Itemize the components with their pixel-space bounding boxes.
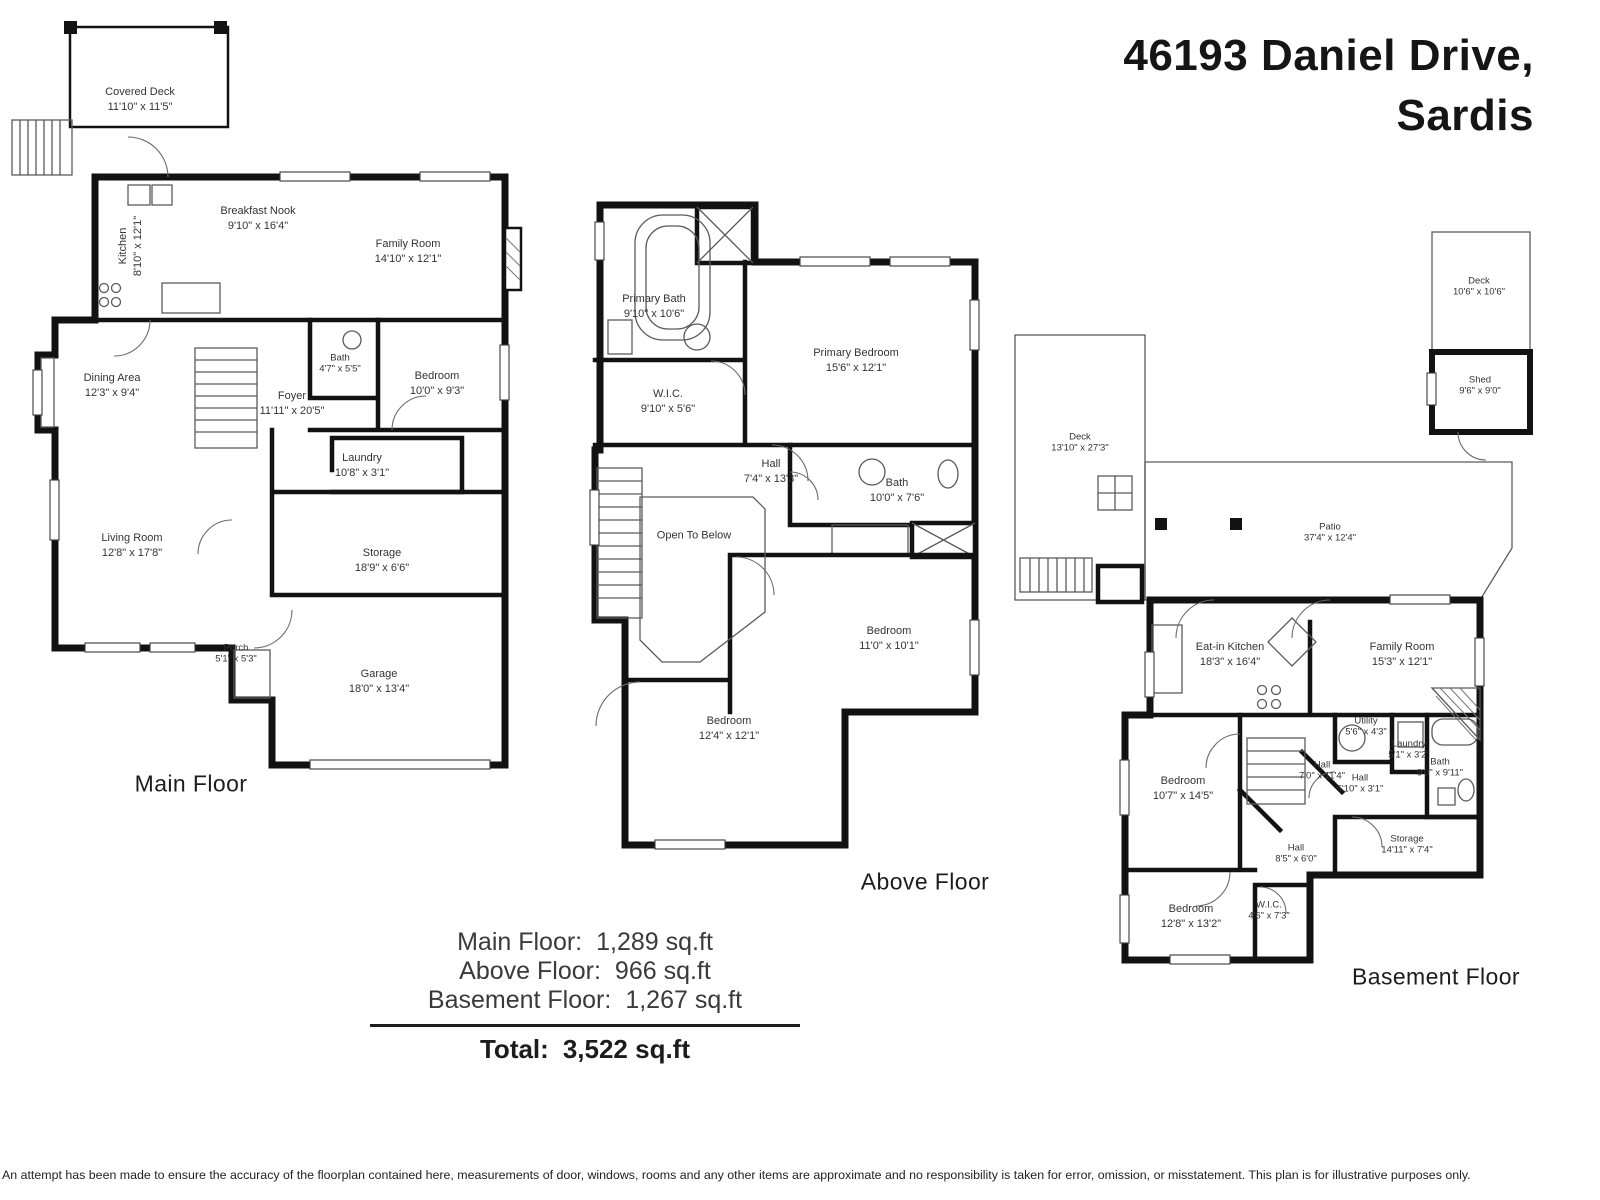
room-label-open-to-below: Open To Below (657, 529, 731, 544)
summary-label: Main Floor: (457, 928, 582, 957)
room-label-breakfast-nook: Breakfast Nook9'10" x 16'4" (220, 204, 295, 234)
room-label-wic-above: W.I.C.9'10" x 5'6" (641, 387, 695, 417)
summary-total-value: 3,522 sq.ft (563, 1035, 690, 1064)
summary-row-above: Above Floor: 966 sq.ft (330, 957, 840, 986)
room-label-wic-bsmt: W.I.C.4'6" x 7'3" (1248, 900, 1290, 923)
room-label-hall-bsmt-3: Hall8'5" x 6'0" (1275, 843, 1317, 866)
room-label-bedroom-main: Bedroom10'0" x 9'3" (410, 369, 464, 399)
room-label-bedroom3-above: Bedroom12'4" x 12'1" (699, 714, 759, 744)
room-label-bedroom2-above: Bedroom11'0" x 10'1" (859, 624, 919, 654)
room-label-covered-deck: Covered Deck11'10" x 11'5" (105, 85, 175, 115)
room-label-deck-left: Deck13'10" x 27'3" (1051, 432, 1108, 455)
room-label-bath-above: Bath10'0" x 7'6" (870, 476, 924, 506)
summary-total-label: Total: (480, 1035, 549, 1064)
summary-value: 1,289 sq.ft (596, 928, 713, 957)
room-label-bedroom-bsmt-1: Bedroom10'7" x 14'5" (1153, 774, 1213, 804)
disclaimer-text: An attempt has been made to ensure the a… (0, 1168, 1600, 1182)
room-label-bedroom-bsmt-2: Bedroom12'8" x 13'2" (1161, 902, 1221, 932)
room-label-deck-tr: Deck10'6" x 10'6" (1453, 276, 1505, 299)
room-label-foyer: Foyer11'11" x 20'5" (260, 389, 325, 419)
room-label-bath-main: Bath4'7" x 5'5" (319, 353, 361, 376)
room-label-eat-in-kitchen: Eat-in Kitchen18'3" x 16'4" (1196, 640, 1264, 670)
summary-row-basement: Basement Floor: 1,267 sq.ft (330, 986, 840, 1015)
title-line2: Sardis (1123, 86, 1534, 146)
room-label-laundry-main: Laundry10'8" x 3'1" (335, 451, 389, 481)
room-label-storage-main: Storage18'9" x 6'6" (355, 546, 409, 576)
room-label-hall-above: Hall7'4" x 13'3" (744, 457, 798, 487)
area-summary: Main Floor: 1,289 sq.ft Above Floor: 966… (330, 928, 840, 1064)
room-label-porch: Porch5'1" x 5'3" (215, 643, 257, 666)
summary-value: 966 sq.ft (615, 957, 711, 986)
title-line1: 46193 Daniel Drive, (1123, 26, 1534, 86)
room-label-patio: Patio37'4" x 12'4" (1304, 522, 1356, 545)
above-floor-label: Above Floor (861, 869, 989, 896)
page-title: 46193 Daniel Drive, Sardis (1123, 26, 1534, 146)
room-label-storage-bsmt: Storage14'11" x 7'4" (1381, 834, 1432, 857)
summary-label: Above Floor: (459, 957, 601, 986)
main-floor-label: Main Floor (135, 771, 248, 798)
room-label-hall-bsmt-2: Hall5'10" x 3'1" (1337, 773, 1384, 796)
floorplan-page: 46193 Daniel Drive, Sardis Covered Deck1… (0, 0, 1600, 1200)
summary-value: 1,267 sq.ft (625, 986, 742, 1015)
room-label-garage: Garage18'0" x 13'4" (349, 667, 409, 697)
room-label-shed: Shed9'6" x 9'0" (1459, 375, 1501, 398)
room-label-primary-bath: Primary Bath9'10" x 10'6" (622, 292, 686, 322)
room-label-family-room-bsmt: Family Room15'3" x 12'1" (1370, 640, 1435, 670)
room-label-primary-bedroom: Primary Bedroom15'6" x 12'1" (813, 346, 899, 376)
room-label-living-room: Living Room12'8" x 17'8" (101, 531, 162, 561)
basement-floor-label: Basement Floor (1352, 964, 1520, 991)
room-label-kitchen: Kitchen8'10" x 12'1" (116, 216, 146, 276)
summary-row-total: Total: 3,522 sq.ft (330, 1035, 840, 1064)
room-label-utility: Utility5'6" x 4'3" (1345, 716, 1387, 739)
summary-label: Basement Floor: (428, 986, 611, 1015)
room-label-dining-area: Dining Area12'3" x 9'4" (84, 371, 141, 401)
summary-row-main: Main Floor: 1,289 sq.ft (330, 928, 840, 957)
summary-divider (370, 1024, 800, 1027)
room-label-bath-bsmt: Bath9'0" x 9'11" (1417, 757, 1463, 780)
basement-floor-walls (1015, 232, 1530, 964)
room-label-family-room: Family Room14'10" x 12'1" (375, 237, 441, 267)
